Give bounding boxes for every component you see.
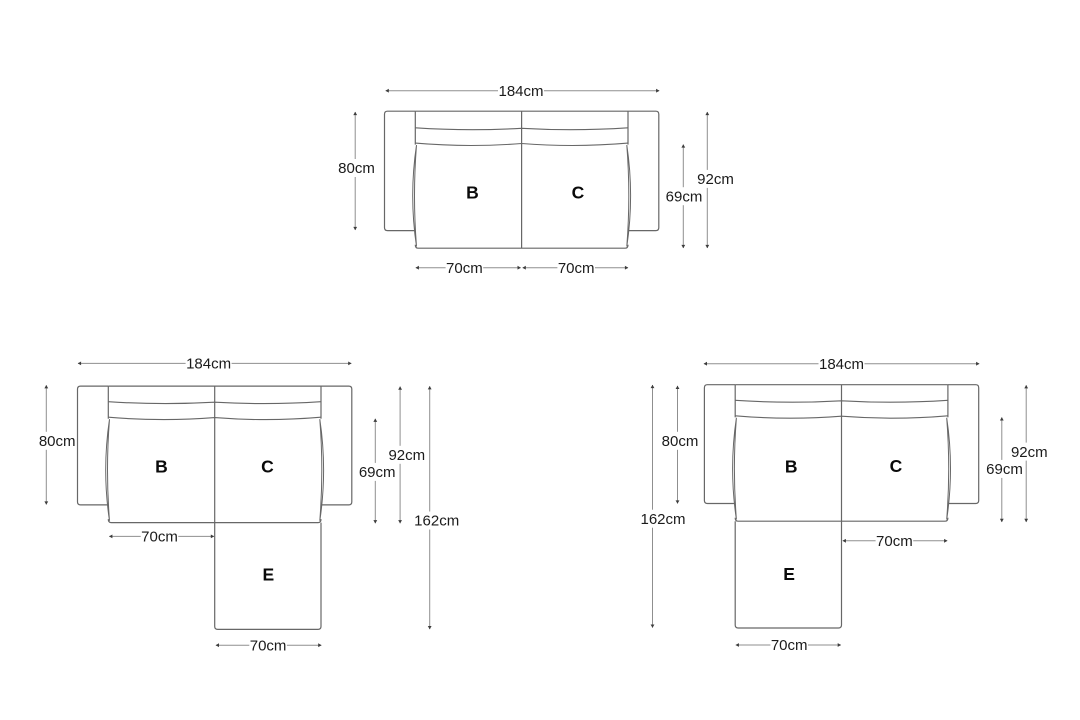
svg-text:69cm: 69cm	[359, 464, 396, 481]
svg-text:184cm: 184cm	[186, 356, 231, 373]
svg-text:162cm: 162cm	[640, 511, 685, 528]
svg-text:162cm: 162cm	[414, 513, 459, 530]
svg-text:B: B	[785, 456, 798, 476]
svg-text:69cm: 69cm	[986, 461, 1023, 478]
svg-text:70cm: 70cm	[558, 260, 595, 277]
svg-text:69cm: 69cm	[666, 188, 703, 205]
svg-text:92cm: 92cm	[388, 447, 425, 464]
svg-text:C: C	[572, 183, 585, 203]
svg-text:C: C	[890, 456, 903, 476]
svg-text:184cm: 184cm	[498, 83, 543, 100]
svg-text:E: E	[263, 565, 275, 585]
svg-text:70cm: 70cm	[446, 260, 483, 277]
svg-text:70cm: 70cm	[250, 637, 287, 654]
svg-text:80cm: 80cm	[662, 433, 699, 450]
svg-text:70cm: 70cm	[771, 637, 808, 654]
svg-text:E: E	[783, 564, 795, 584]
svg-text:B: B	[155, 457, 168, 477]
svg-text:92cm: 92cm	[697, 171, 734, 188]
svg-text:70cm: 70cm	[141, 529, 178, 546]
svg-text:B: B	[466, 183, 479, 203]
svg-text:70cm: 70cm	[876, 533, 913, 550]
svg-text:184cm: 184cm	[819, 356, 864, 373]
svg-text:80cm: 80cm	[338, 160, 375, 177]
svg-text:C: C	[261, 457, 274, 477]
svg-text:92cm: 92cm	[1011, 444, 1048, 461]
svg-text:80cm: 80cm	[39, 433, 76, 450]
